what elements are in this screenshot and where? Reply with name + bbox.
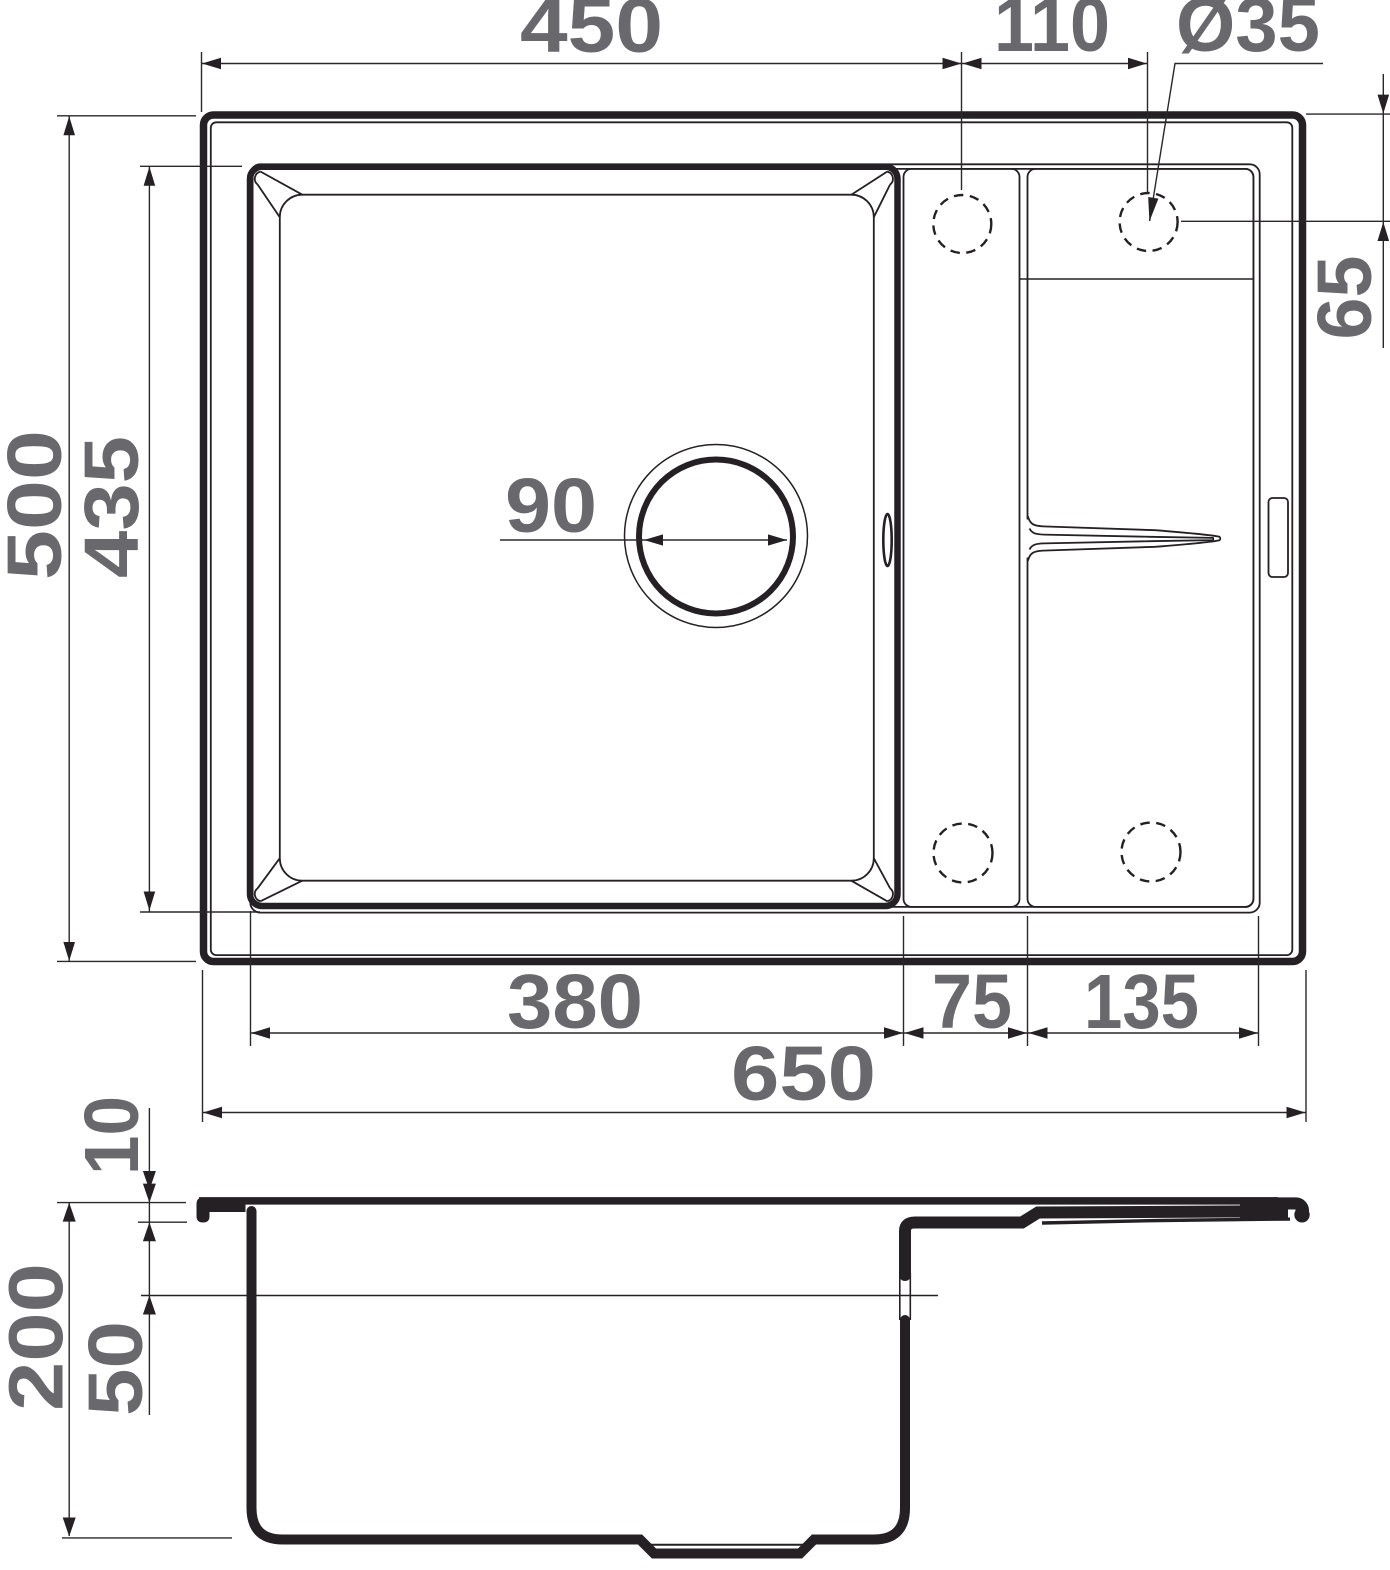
svg-text:380: 380 — [507, 959, 643, 1045]
svg-text:450: 450 — [520, 0, 663, 69]
svg-text:650: 650 — [731, 1031, 876, 1117]
svg-text:110: 110 — [994, 0, 1110, 68]
svg-text:Ø35: Ø35 — [1176, 0, 1320, 68]
svg-text:135: 135 — [1084, 959, 1199, 1045]
svg-text:75: 75 — [932, 959, 1012, 1045]
svg-text:65: 65 — [1302, 256, 1388, 340]
svg-text:200: 200 — [0, 1263, 80, 1411]
svg-text:90: 90 — [505, 463, 597, 549]
svg-text:10: 10 — [69, 1096, 155, 1175]
svg-text:500: 500 — [0, 430, 78, 580]
svg-text:50: 50 — [73, 1321, 159, 1416]
svg-text:435: 435 — [69, 436, 155, 578]
